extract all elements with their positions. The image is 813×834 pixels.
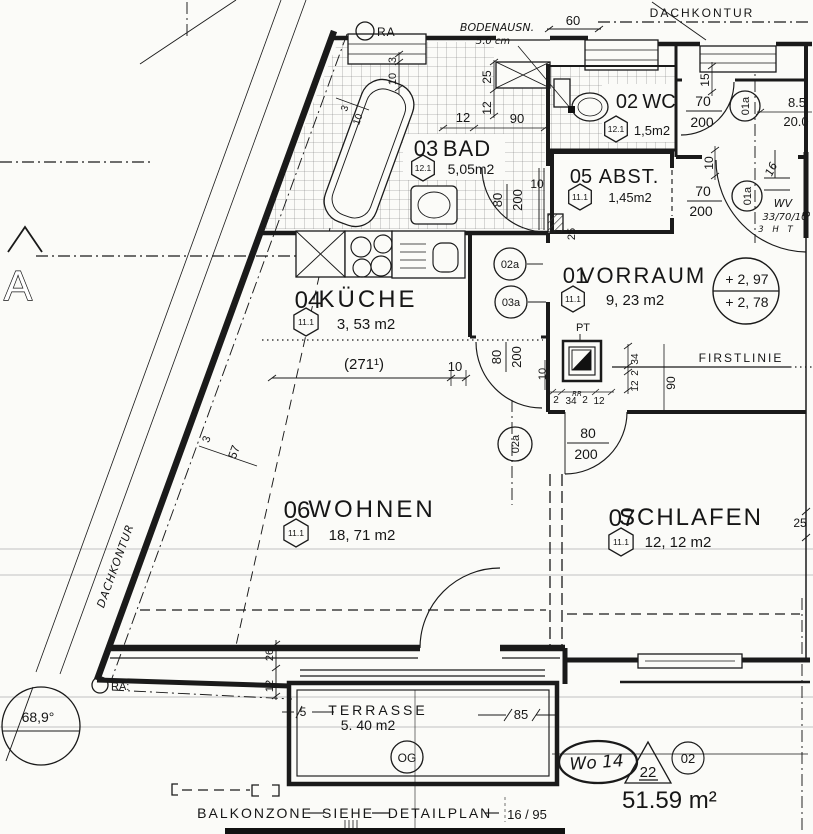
terrace-name: TERRASSE <box>328 702 427 718</box>
dim-left-12: 12 <box>264 680 276 692</box>
room-number-kueche: 04 <box>295 287 322 314</box>
room-area-kueche: 3, 53 m2 <box>337 316 395 333</box>
room-name-abst: ABST. <box>599 166 660 188</box>
dim-shaft-h12: 12 <box>593 396 605 407</box>
rr-label: RR <box>572 390 582 398</box>
dim-box-25: 25 <box>480 70 494 84</box>
dim-shaft-v12: 12 <box>630 380 641 392</box>
dim-bad-3: 3 <box>387 57 399 63</box>
hand-16-label: 16 <box>763 160 781 178</box>
hex-label-vorraum: 11.1 <box>565 294 581 304</box>
dim-kueche-271: (271¹) <box>344 356 384 373</box>
dim-shaft-v2: 2 <box>630 370 641 376</box>
door-vorraum-width: 70 <box>695 183 711 199</box>
dim-column-25: 25 <box>566 228 578 240</box>
note-ref: 16 / 95 <box>507 807 547 822</box>
dim-60: 60 <box>566 13 580 28</box>
ra-label-top: RA <box>377 25 396 39</box>
dim-bad-90: 90 <box>510 111 524 126</box>
dim-baddoor-10: 10 <box>530 177 544 191</box>
column-hatched <box>548 214 563 232</box>
room-area-wc: 1,5m2 <box>634 123 670 138</box>
dim-wall-3: 3 <box>200 434 213 444</box>
room-name-bad: BAD <box>443 136 491 161</box>
room-area-wohnen: 18, 71 m2 <box>329 527 396 544</box>
dim-wall-57: 57 <box>225 443 243 461</box>
dim-schlafen-25: 25 <box>793 516 807 530</box>
hex-label-schlafen: 11.1 <box>613 537 629 547</box>
bodenausn-label-2: 5.0 cm <box>476 36 511 47</box>
dim-shaft-h2b: 2 <box>582 395 588 406</box>
dim-left-26: 26 <box>264 649 276 661</box>
dim-shaft-h2a: 2 <box>553 395 559 406</box>
bad-sink <box>411 186 457 224</box>
door-vorraum-tag: 01a <box>742 186 754 205</box>
dim-kueche-10: 10 <box>448 359 462 374</box>
dim-box-12: 12 <box>480 101 494 115</box>
index-circle-label: 02 <box>681 751 695 766</box>
unit-label: Wo 14 <box>569 751 625 775</box>
dim-entry-200: 20.0 <box>783 114 808 129</box>
room-number-wc: 02 <box>616 91 638 113</box>
room-name-wc: WC <box>642 91 675 113</box>
total-area: 51.59 m² <box>622 787 717 814</box>
door-schlafen-height: 200 <box>574 446 598 462</box>
room-area-bad: 5,05m2 <box>448 161 495 177</box>
window-top-right <box>700 46 776 72</box>
dim-terr-85: 85 <box>514 707 528 722</box>
note-detailplan: DETAILPLAN <box>388 805 493 821</box>
vorraum-north-door-arc <box>716 160 806 252</box>
door-entry-tag: 01a <box>740 96 752 115</box>
door-bad-height: 200 <box>510 189 525 211</box>
dachkontur-label-top: DACHKONTUR <box>650 6 755 20</box>
hex-label-wohnen: 11.1 <box>288 528 304 538</box>
wv-label-3: 3 H T <box>758 225 795 235</box>
door-bad-width: 80 <box>490 193 505 207</box>
floor-plan-drawing: 02 WC 12.1 1,5m2 03 BAD 12.1 5,05m2 05 A… <box>0 0 813 834</box>
note-balkonzone: BALKONZONE <box>197 805 313 821</box>
shaft <box>563 341 601 381</box>
room-area-vorraum: 9, 23 m2 <box>606 292 664 309</box>
dim-bad-12: 12 <box>456 110 470 125</box>
room-name-wohnen: WOHNEN <box>308 496 435 523</box>
hex-label-abst: 11.1 <box>572 192 588 202</box>
room-area-schlafen: 12, 12 m2 <box>645 534 712 551</box>
door-corridor-height: 200 <box>509 346 524 368</box>
room-name-kueche: KÜCHE <box>318 286 417 313</box>
door-tag-02a-label: 02a <box>501 259 520 271</box>
door-corridor-width: 80 <box>489 350 504 364</box>
kitchen-counter <box>296 231 465 278</box>
reference-lines <box>140 340 812 614</box>
hex-label-kueche: 11.1 <box>298 317 314 327</box>
firstlinie-label: FIRSTLINIE <box>699 351 784 365</box>
room-area-abst: 1,45m2 <box>608 190 651 205</box>
index-triangle-label: 22 <box>640 764 657 781</box>
bodenausn-label-1: BODENAUSN. <box>460 21 534 34</box>
pt-label: PT <box>576 322 590 334</box>
room-number-wohnen: 06 <box>284 497 311 524</box>
level-upper: + 2, 97 <box>725 271 768 287</box>
door-tag-03a-label: 03a <box>502 297 521 309</box>
ra-label-bottom: RA: <box>111 681 129 693</box>
door-vorraum-height: 200 <box>689 203 713 219</box>
room-number-bad: 03 <box>414 136 438 161</box>
terrace-area: 5. 40 m2 <box>341 717 396 733</box>
section-arrow <box>8 227 42 252</box>
level-lower: + 2, 78 <box>725 294 768 310</box>
og-label: OG <box>398 751 417 765</box>
dim-wc-15: 15 <box>698 73 712 87</box>
terrace-door-arc <box>420 568 500 648</box>
dim-shaft-10: 10 <box>537 368 549 380</box>
note-siehe: SIEHE <box>322 805 374 821</box>
door-schlafen-width: 80 <box>580 425 596 441</box>
room-number-abst: 05 <box>570 166 592 188</box>
angle-label: 68,9° <box>22 709 55 725</box>
wv-label-1: WV <box>774 197 794 210</box>
window-schlafen <box>638 654 742 668</box>
dim-abst-10: 10 <box>702 156 716 170</box>
door-tag-02a-mid-label: 02a <box>510 434 522 453</box>
floor-plan-sheet: 02 WC 12.1 1,5m2 03 BAD 12.1 5,05m2 05 A… <box>0 0 813 834</box>
hex-label-bad: 12.1 <box>415 163 432 173</box>
door-entry-height: 200 <box>690 114 714 130</box>
scan-artifacts <box>0 549 813 727</box>
dim-terr-5: 5 <box>300 705 307 719</box>
room-name-vorraum: VORRAUM <box>580 263 706 288</box>
wv-label-2: 33/70/10 <box>763 212 808 223</box>
section-marker-label: A <box>4 262 32 309</box>
dim-shaft-90: 90 <box>664 376 678 390</box>
room-name-schlafen: SCHLAFEN <box>619 504 763 531</box>
hex-label-wc: 12.1 <box>608 124 625 134</box>
dim-entry-85: 8.5 <box>788 95 806 110</box>
door-entry-width: 70 <box>695 93 711 109</box>
dim-bad-10: 10 <box>387 73 399 85</box>
dim-shaft-v34: 34 <box>630 353 641 365</box>
